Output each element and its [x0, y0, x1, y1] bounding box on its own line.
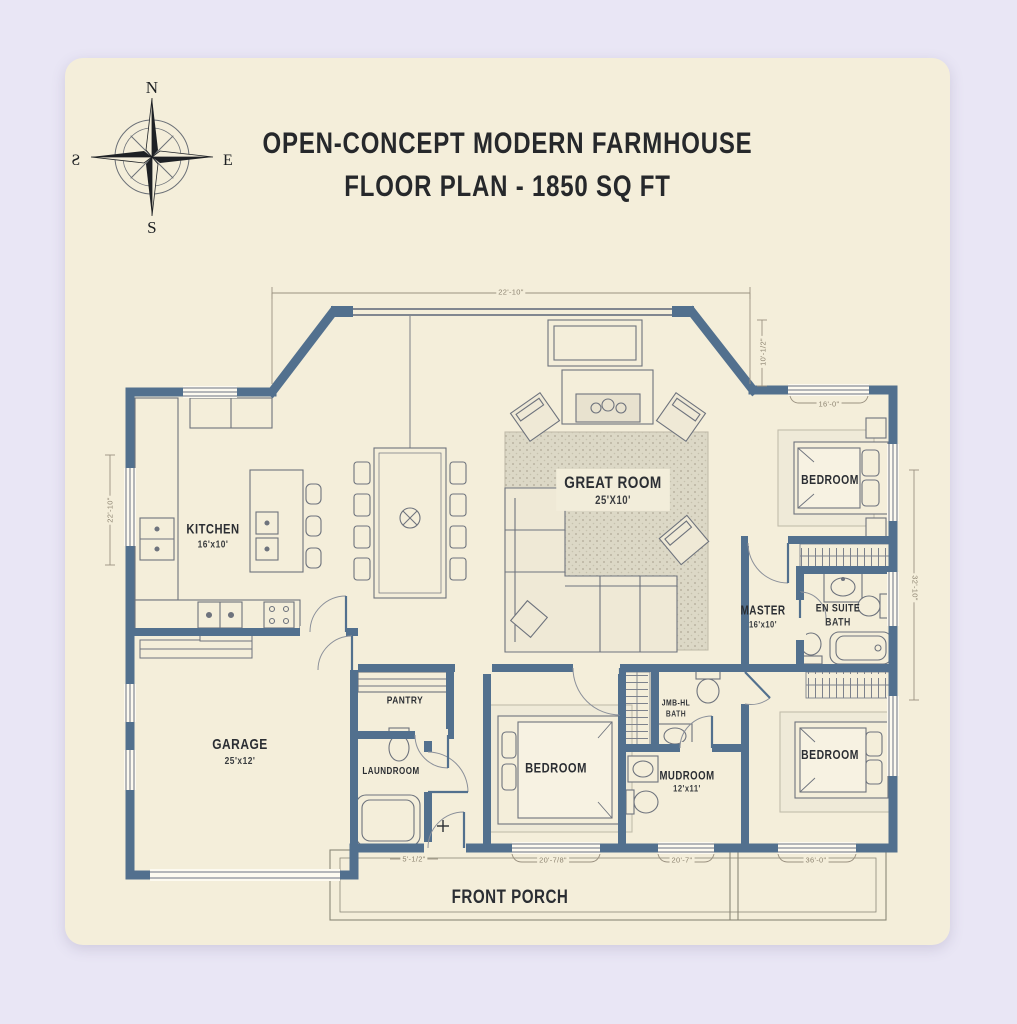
dimension-bottom-window-2: 20'-7" [670, 856, 695, 865]
room-label-great-room: GREAT ROOM 25'X10' [556, 469, 669, 511]
room-label-bedroom-middle: BEDROOM [525, 759, 587, 777]
dimension-right-height: 32'-10" [911, 573, 920, 602]
room-label-bedroom-top-right: BEDROOM [801, 472, 859, 488]
clerestory-wall [331, 306, 694, 317]
room-label-bedroom-bottom-right: BEDROOM [801, 747, 859, 763]
plan-title: OPEN-CONCEPT MODERN FARMHOUSE FLOOR PLAN… [65, 122, 950, 208]
dining-furniture [354, 316, 466, 598]
room-label-ensuite: EN SUITE BATH [816, 602, 860, 630]
plan-title-line1: OPEN-CONCEPT MODERN FARMHOUSE [154, 122, 862, 165]
compass-south-label: S [145, 218, 159, 238]
room-label-master: MASTER 16'x10' [740, 603, 785, 631]
room-label-garage: GARAGE 25'x12' [212, 736, 268, 768]
dimension-bedroom-window: 16'-0" [817, 400, 842, 409]
room-label-front-porch: FRONT PORCH [452, 886, 569, 910]
dimension-left-height: 22'-10" [106, 495, 115, 524]
plan-title-line2: FLOOR PLAN - 1850 SQ FT [154, 165, 862, 208]
room-label-pantry: PANTRY [387, 694, 423, 707]
garage-fixtures [140, 634, 252, 658]
room-label-hall-bath: JMB-HL BATH [662, 697, 691, 718]
room-label-mudroom: MUDROOM 12'x11' [659, 769, 714, 796]
room-label-laundry: LAUNDROOM [362, 766, 419, 779]
dimension-top-width: 22'-10" [496, 288, 525, 297]
compass-north-label: N [144, 78, 161, 98]
dimension-bottom-window-1: 20'-7/8" [537, 856, 569, 865]
dimension-bottom-window-3: 36'-0" [804, 856, 829, 865]
room-label-kitchen: KITCHEN 16'x10' [186, 521, 239, 552]
kitchen-fixtures [135, 398, 321, 630]
dimension-upper-right-height: 10'-1/2" [759, 336, 768, 368]
dimension-front-door: 5'-1/2" [400, 855, 427, 864]
